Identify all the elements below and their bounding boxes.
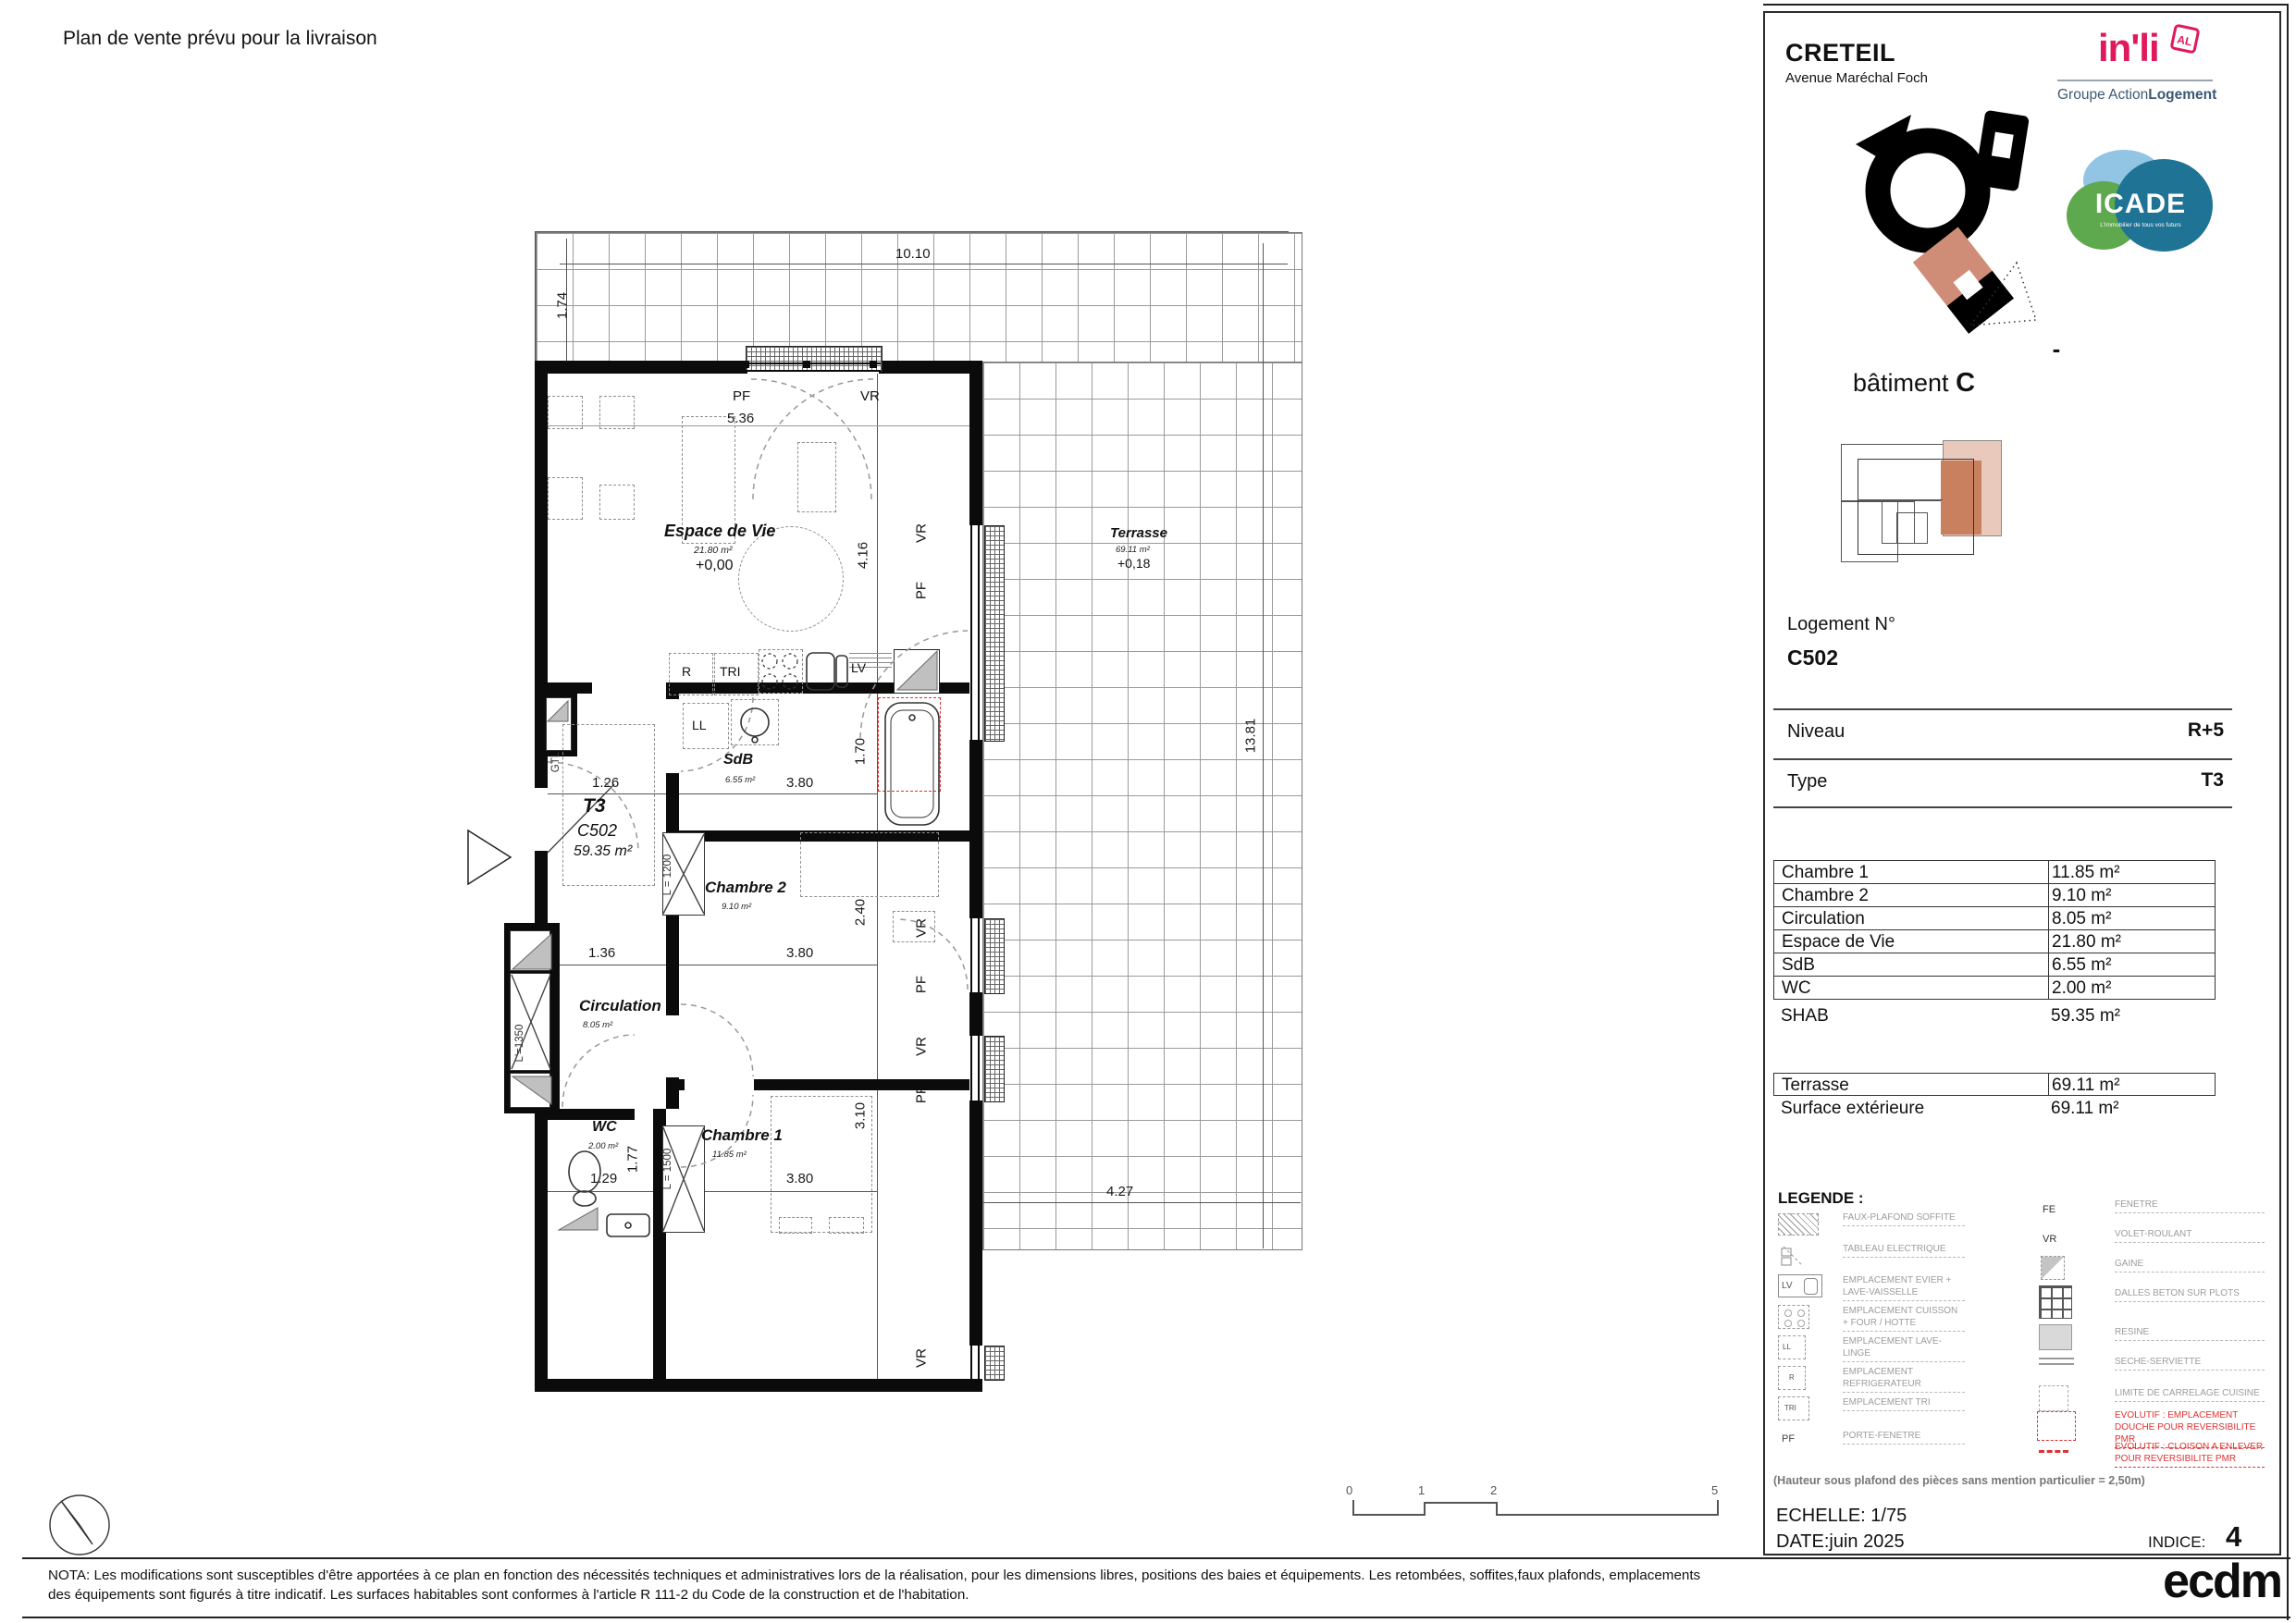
- shab-value: 59.35 m²: [2051, 1006, 2120, 1027]
- inli-divider: [2057, 80, 2213, 81]
- wall: [969, 740, 982, 918]
- exterior-value: 69.11 m²: [2051, 1099, 2119, 1119]
- area-label: Terrasse: [1782, 1076, 1849, 1096]
- pmr-cloison-icon: [2039, 1450, 2068, 1453]
- dim-label: 13.81: [1243, 708, 1259, 764]
- window-tag-pf: PF: [914, 563, 930, 619]
- window-frame: [803, 361, 810, 368]
- room-level-espace: +0,00: [696, 558, 733, 574]
- cell-divider: [2048, 930, 2049, 953]
- lv-letter: LV: [1782, 1281, 1793, 1291]
- pmr-douche-icon: [2037, 1411, 2076, 1441]
- area-value: 21.80 m²: [2052, 932, 2121, 953]
- window-tag-vr: VR: [914, 1331, 930, 1386]
- room-area-chambre1: 11.85 m²: [712, 1150, 747, 1160]
- seche-serviette-icon: [2039, 1358, 2074, 1365]
- room-name-wc: WC: [592, 1119, 617, 1136]
- scale-tick-5: 5: [1711, 1483, 1718, 1497]
- scale-tick-1: 1: [1418, 1483, 1425, 1497]
- room-area-wc: 2.00 m²: [588, 1141, 618, 1151]
- key-plan-shape: [1896, 512, 1928, 544]
- area-row: Espace de Vie21.80 m²: [1773, 929, 2216, 953]
- legend-label: SECHE-SERVIETTE: [2115, 1356, 2265, 1371]
- shaft-box: [510, 930, 550, 971]
- area-value: 6.55 m²: [2052, 955, 2111, 976]
- window-shutter-hatch: [984, 1036, 1005, 1102]
- wall: [969, 361, 982, 525]
- window-frame: [970, 1346, 972, 1379]
- window-frame: [970, 918, 972, 992]
- dim-label: L = 1200: [662, 842, 673, 907]
- terrace-grid-right: [982, 362, 1302, 1250]
- cell-divider: [2048, 977, 2049, 999]
- date-text: DATE:juin 2025: [1776, 1531, 1905, 1553]
- page-border-bottom: [22, 1617, 2290, 1618]
- dim-label: 1.70: [853, 724, 869, 780]
- room-area-terrasse: 69.11 m²: [1116, 545, 1150, 555]
- pf-icon: PF: [1782, 1430, 1795, 1446]
- terrace-row: Terrasse69.11 m²: [1773, 1073, 2216, 1096]
- ll-letter: LL: [1783, 1343, 1791, 1351]
- room-name-circulation: Circulation: [579, 997, 661, 1015]
- dim-label: 4.27: [1106, 1184, 1133, 1199]
- fe-icon: FE: [2043, 1200, 2055, 1217]
- scale-bar: [1353, 1500, 1718, 1515]
- north-compass-icon: [50, 1495, 109, 1555]
- hall-dashed-zone: [562, 724, 655, 886]
- legend-label-red: EVOLUTIF : CLOISON A ENLEVER POUR REVERS…: [2115, 1441, 2265, 1468]
- area-label: Chambre 2: [1782, 886, 1869, 906]
- room-area-espace: 21.80 m²: [694, 545, 732, 556]
- scale-tick-0: 0: [1346, 1483, 1352, 1497]
- dim-label: 2.40: [853, 885, 869, 941]
- legend-label: EMPLACEMENT LAVE-LINGE: [1843, 1335, 1965, 1362]
- tri-tag: TRI: [720, 664, 741, 679]
- table-round: [738, 526, 844, 632]
- area-row: WC2.00 m²: [1773, 976, 2216, 1000]
- area-row: Chambre 111.85 m²: [1773, 860, 2216, 884]
- building-dash: -: [2043, 335, 2070, 363]
- dim-label: 1.36: [588, 945, 615, 961]
- legend-label: RESINE: [2115, 1326, 2265, 1341]
- room-name-espace: Espace de Vie: [664, 522, 775, 541]
- room-name-sdb: SdB: [723, 752, 753, 768]
- exterior-label: Surface extérieure: [1781, 1099, 1924, 1119]
- shab-label: SHAB: [1781, 1006, 1829, 1027]
- area-row: Chambre 29.10 m²: [1773, 883, 2216, 907]
- pmr-shower-evolutive: [878, 697, 941, 792]
- dim-label: 3.80: [786, 1171, 813, 1187]
- inli-group-label: Groupe ActionLogement: [2057, 87, 2216, 104]
- window-frame: [746, 363, 881, 364]
- window-tag-vr: VR: [914, 901, 930, 956]
- sheet-note: Plan de vente prévu pour la livraison: [63, 28, 377, 50]
- area-row: SdB6.55 m²: [1773, 953, 2216, 977]
- area-value: 8.05 m²: [2052, 909, 2111, 929]
- divider: [1773, 758, 2232, 760]
- brand-art: [1808, 78, 2048, 355]
- window-shutter-hatch: [984, 1346, 1005, 1381]
- dim-label: 1.29: [590, 1171, 617, 1187]
- area-value: 9.10 m²: [2052, 886, 2111, 906]
- legend-label: PORTE-FENETRE: [1843, 1430, 1965, 1445]
- wall: [548, 1109, 635, 1120]
- plan-sheet: Plan de vente prévu pour la livraison: [0, 0, 2296, 1623]
- area-value: 69.11 m²: [2052, 1076, 2120, 1096]
- window-shutter-hatch: [984, 918, 1005, 994]
- building-label: bâtiment: [1853, 369, 1956, 397]
- pf-letter: PF: [1782, 1433, 1795, 1445]
- legend-label: EMPLACEMENT REFRIGERATEUR: [1843, 1366, 1965, 1393]
- lave-linge-icon: LL: [1778, 1335, 1806, 1359]
- dim-label: 10.10: [895, 246, 931, 262]
- window-frame: [742, 361, 749, 368]
- unit-number-caption: Logement N°: [1787, 614, 1895, 635]
- page-border-top: [1763, 4, 2289, 6]
- cell-divider: [2048, 953, 2049, 976]
- r-letter: R: [1789, 1373, 1795, 1382]
- window-tag-pf: PF: [914, 1067, 930, 1123]
- area-label: Espace de Vie: [1782, 932, 1895, 953]
- entrance-arrow-icon: [468, 830, 511, 884]
- wall: [969, 992, 982, 1036]
- window-tag-pf: PF: [914, 957, 930, 1013]
- area-label: Circulation: [1782, 909, 1865, 929]
- legend-label: EMPLACEMENT TRI: [1843, 1396, 1965, 1411]
- window-frame: [870, 361, 877, 368]
- window-frame: [978, 918, 980, 992]
- dim-label: 5.36: [727, 411, 754, 426]
- window-frame: [978, 525, 980, 740]
- dim-label: 3.10: [853, 1088, 869, 1144]
- icade-logo: ICADE L'immobilier de tous vos futurs: [2057, 148, 2216, 259]
- key-plan-shape: [1858, 499, 1943, 500]
- ecdm-logo: ecdm: [2142, 1554, 2281, 1609]
- vr-letter: VR: [2043, 1234, 2056, 1245]
- legend-label: EMPLACEMENT CUISSON + FOUR / HOTTE: [1843, 1305, 1965, 1332]
- cell-divider: [2048, 861, 2049, 883]
- dim-line: [560, 264, 1288, 264]
- tri-letter: TRI: [1784, 1404, 1796, 1412]
- cell-divider: [2048, 1074, 2049, 1096]
- legend-label: FAUX-PLAFOND SOFFITE: [1843, 1211, 1965, 1226]
- dim-label: 4.16: [856, 528, 871, 584]
- footer-rule: [22, 1557, 2290, 1559]
- dalles-beton-icon: [2039, 1285, 2072, 1319]
- furniture: [599, 485, 635, 520]
- window-frame: [970, 525, 972, 740]
- room-name-chambre2: Chambre 2: [705, 879, 786, 897]
- room-name-chambre1: Chambre 1: [701, 1126, 783, 1145]
- sink-bowl-icon: [1804, 1278, 1818, 1295]
- cuisson-icon: [1778, 1305, 1809, 1329]
- area-value: 2.00 m²: [2052, 978, 2111, 999]
- cooktop-slot: [759, 649, 803, 694]
- building-value: C: [1956, 368, 1975, 398]
- window-shutter-hatch: [746, 346, 883, 372]
- vr-icon: VR: [2043, 1230, 2056, 1247]
- dim-line: [548, 965, 877, 965]
- room-area-chambre2: 9.10 m²: [722, 902, 751, 912]
- icade-tagline: L'immobilier de tous vos futurs: [2083, 222, 2198, 228]
- area-label: WC: [1782, 978, 1811, 999]
- room-level-terrasse: +0,18: [1117, 556, 1150, 571]
- tableau-electrique-icon: [1780, 1243, 1806, 1269]
- bed-chambre2: [800, 832, 939, 897]
- furniture: [797, 442, 836, 512]
- furniture: [548, 477, 583, 520]
- nota-text: NOTA: Les modifications sont susceptible…: [48, 1567, 1713, 1605]
- fridge-tag-r: R: [682, 664, 691, 679]
- unit-number-label: C502: [577, 821, 617, 841]
- furniture: [548, 396, 583, 429]
- window-tag-vr: VR: [914, 506, 930, 561]
- dim-label: 1.74: [555, 278, 571, 334]
- level-label: Niveau: [1787, 721, 1845, 743]
- legend-label: FENETRE: [2115, 1199, 2265, 1213]
- area-value: 11.85 m²: [2052, 863, 2120, 883]
- divider: [1773, 806, 2232, 808]
- area-row: Circulation8.05 m²: [1773, 906, 2216, 930]
- window-shutter-hatch: [984, 525, 1005, 742]
- furniture: [829, 1217, 864, 1234]
- window-tag-vr: VR: [914, 1019, 930, 1075]
- wall: [666, 1077, 679, 1109]
- indice-label: INDICE:: [2148, 1533, 2205, 1552]
- key-plan: [1841, 440, 2004, 566]
- resine-icon: [2039, 1324, 2072, 1350]
- shaft-box: [510, 1073, 550, 1108]
- dishwasher-tag-lv: LV: [851, 660, 866, 675]
- fe-letter: FE: [2043, 1204, 2055, 1215]
- building-title: bâtiment C: [1853, 368, 1975, 399]
- group-prefix: Groupe Action: [2057, 87, 2148, 103]
- dim-label: 1.26: [592, 775, 619, 791]
- carrelage-limite-icon: [2039, 1385, 2068, 1411]
- dim-line: [1263, 243, 1264, 1248]
- type-label: Type: [1787, 771, 1827, 793]
- legend-label: DALLES BETON SUR PLOTS: [2115, 1287, 2265, 1302]
- gaine-triangle: [2042, 1257, 2064, 1279]
- wall: [879, 361, 982, 374]
- window-frame: [746, 370, 881, 372]
- window-frame: [978, 1036, 980, 1100]
- gtl-tag: GTL: [550, 730, 562, 794]
- inli-logo: in'li: [2098, 26, 2159, 70]
- dim-label: 1.77: [625, 1132, 641, 1187]
- project-city: CRETEIL: [1785, 39, 1895, 68]
- dim-label: L = 1500: [662, 1137, 673, 1201]
- icade-wordmark: ICADE: [2083, 189, 2198, 220]
- room-area-sdb: 6.55 m²: [725, 775, 755, 785]
- level-value: R+5: [1996, 719, 2224, 742]
- unit-area-label: 59.35 m²: [574, 843, 632, 860]
- dim-label: 3.80: [786, 775, 813, 791]
- window-frame: [978, 1346, 980, 1379]
- washer-tag-ll: LL: [692, 718, 707, 732]
- legend-label: GAINE: [2115, 1258, 2265, 1273]
- legend-label: EMPLACEMENT EVIER + LAVE-VAISSELLE: [1843, 1274, 1965, 1301]
- evier-lv-icon: LV: [1778, 1274, 1822, 1297]
- basin-slot: [731, 699, 779, 745]
- divider: [1773, 708, 2232, 710]
- tri-icon: TRI: [1778, 1396, 1809, 1420]
- unit-type-label: T3: [583, 795, 606, 818]
- faux-plafond-icon: [1778, 1213, 1819, 1236]
- dim-label: L'=1350: [514, 1011, 525, 1076]
- room-area-circulation: 8.05 m²: [583, 1020, 612, 1030]
- legend-label: TABLEAU ELECTRIQUE: [1843, 1243, 1965, 1258]
- duct-box: [894, 649, 940, 694]
- wall: [535, 361, 747, 374]
- cell-divider: [2048, 884, 2049, 906]
- unit-number-value: C502: [1787, 646, 1838, 670]
- window-tag-pf: PF: [733, 388, 750, 404]
- scale-text: ECHELLE: 1/75: [1776, 1506, 1907, 1527]
- group-bold: Logement: [2148, 87, 2216, 103]
- indice-value: 4: [2226, 1520, 2241, 1554]
- dim-line: [982, 1202, 1301, 1203]
- type-value: T3: [1996, 769, 2224, 792]
- title-block-panel: CRETEIL Avenue Maréchal Foch in'li AL Gr…: [1763, 11, 2281, 1555]
- room-name-terrasse: Terrasse: [1110, 525, 1167, 541]
- area-label: Chambre 1: [1782, 863, 1869, 883]
- legend-title: LEGENDE :: [1778, 1189, 1864, 1208]
- inli-al-badge-icon: AL: [2169, 23, 2200, 54]
- page-border-right: [2287, 4, 2289, 1620]
- furniture: [779, 1217, 812, 1234]
- wall: [969, 1100, 982, 1346]
- scale-tick-2: 2: [1490, 1483, 1497, 1497]
- cell-divider: [2048, 907, 2049, 929]
- dim-label: 3.80: [786, 945, 813, 961]
- gaine-icon: [2041, 1256, 2065, 1280]
- furniture: [599, 396, 635, 429]
- legend-label: LIMITE DE CARRELAGE CUISINE: [2115, 1387, 2265, 1402]
- area-label: SdB: [1782, 955, 1815, 976]
- window-tag-vr: VR: [860, 388, 880, 404]
- refrigerateur-icon: R: [1778, 1366, 1806, 1390]
- wall: [679, 1079, 685, 1090]
- ceiling-height-note: (Hauteur sous plafond des pièces sans me…: [1773, 1474, 2273, 1487]
- window-frame: [970, 1036, 972, 1100]
- legend-label: VOLET-ROULANT: [2115, 1228, 2265, 1243]
